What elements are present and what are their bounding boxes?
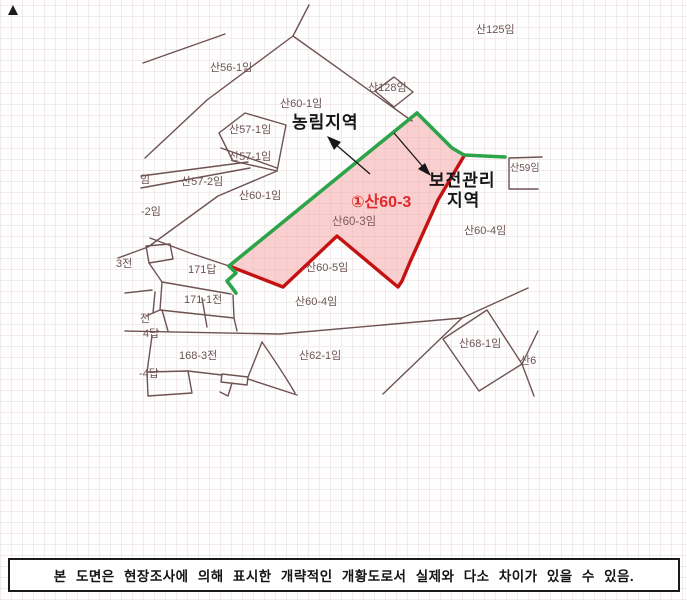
parcel-label: -4답 (139, 368, 159, 380)
highlight-parcel-sub: 산60-3임 (332, 213, 376, 229)
parcel-label: 산62-1임 (299, 350, 341, 362)
note-text: 본 도면은 현장조사에 의해 표시한 개략적인 개황도로서 실제와 다소 차이가… (54, 565, 634, 585)
parcel-label: 산60-4임 (295, 296, 337, 308)
parcel-label: -2임 (141, 206, 161, 218)
triangle-marker (8, 5, 18, 15)
parcel-label: 전 (140, 313, 150, 325)
map-drawing (0, 0, 687, 600)
parcel-label: 산60-1임 (280, 98, 322, 110)
parcel-label: 산57-1임 (229, 151, 271, 163)
parcel-label: 3전 (116, 258, 132, 270)
parcel-label: 임 (140, 174, 150, 186)
parcel-label: 산60-1임 (239, 190, 281, 202)
parcel-label: 산125임 (476, 24, 515, 36)
parcel-label: 산59임 (510, 163, 540, 175)
parcel-label: 산6 (520, 355, 536, 367)
parcel-label: 168-3전 (179, 350, 217, 362)
zoning-label-bojeon-2: 지역 (447, 191, 480, 210)
zoning-label-bojeon-1: 보전관리 (429, 171, 496, 190)
parcel-label: 산56-1임 (210, 62, 252, 74)
parcel-label: 4답 (143, 328, 159, 340)
parcel-label: 산128임 (368, 82, 407, 94)
highlight-parcel-id: ①산60-3 (351, 194, 411, 212)
zoning-label-nonglim: 농림지역 (292, 113, 359, 132)
parcel-label: 171-1전 (184, 294, 222, 306)
parcel-label: 171답 (188, 264, 216, 276)
parcel-label: 산68-1임 (459, 338, 501, 350)
parcel-label: 산57-2임 (181, 176, 223, 188)
cadastral-map: 산56-1임 산125임 산128임 산60-1임 산57-1임 산57-1임 … (0, 0, 687, 600)
parcel-label: 산60-5임 (306, 262, 348, 274)
note-box: 본 도면은 현장조사에 의해 표시한 개략적인 개황도로서 실제와 다소 차이가… (8, 558, 680, 592)
parcel-label: 산57-1임 (229, 124, 271, 136)
parcel-label: 산60-4임 (464, 225, 506, 237)
